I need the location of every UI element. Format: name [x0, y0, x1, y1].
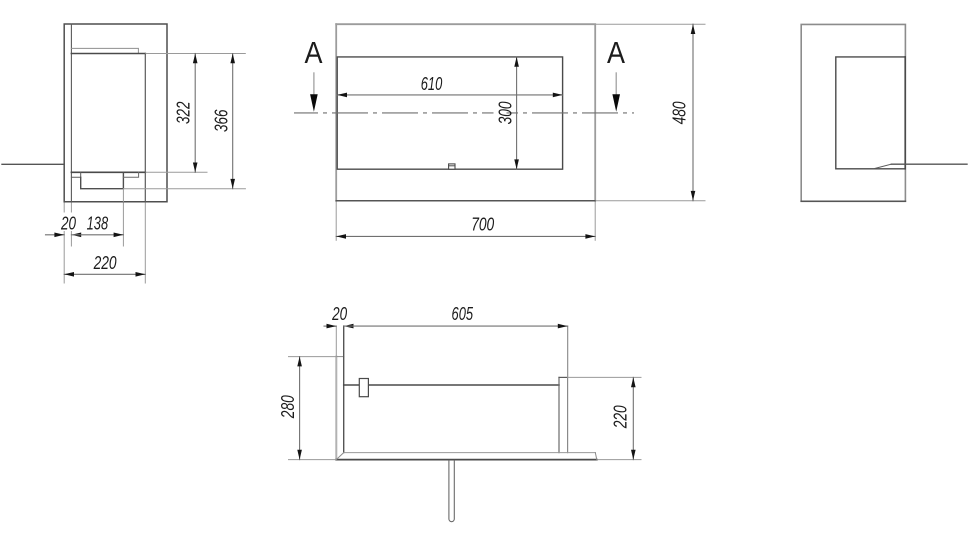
svg-text:605: 605 [452, 303, 474, 324]
svg-text:138: 138 [87, 213, 109, 234]
svg-text:20: 20 [331, 303, 347, 324]
svg-text:220: 220 [93, 252, 117, 273]
svg-text:610: 610 [421, 73, 443, 94]
svg-text:280: 280 [277, 395, 298, 419]
svg-text:A: A [607, 35, 625, 70]
svg-text:220: 220 [610, 405, 631, 429]
svg-text:300: 300 [494, 101, 515, 125]
svg-text:700: 700 [471, 214, 495, 235]
svg-text:480: 480 [669, 101, 690, 125]
svg-text:366: 366 [210, 109, 231, 132]
svg-text:322: 322 [173, 101, 194, 124]
svg-text:20: 20 [60, 213, 76, 234]
svg-text:A: A [305, 35, 323, 70]
